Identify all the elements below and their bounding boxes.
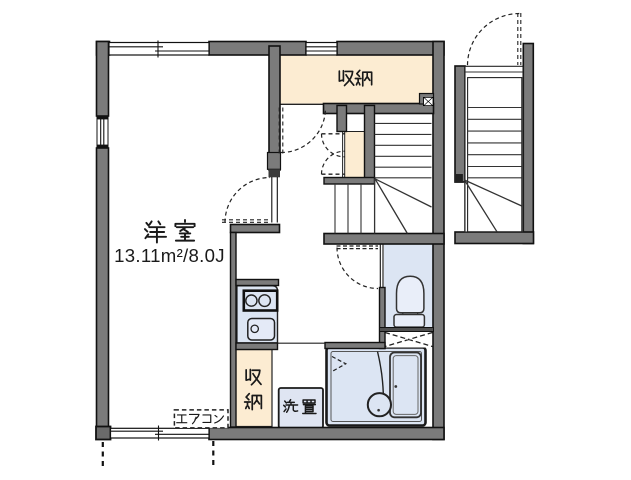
svg-text:13.11m²/8.0J: 13.11m²/8.0J bbox=[114, 245, 225, 266]
